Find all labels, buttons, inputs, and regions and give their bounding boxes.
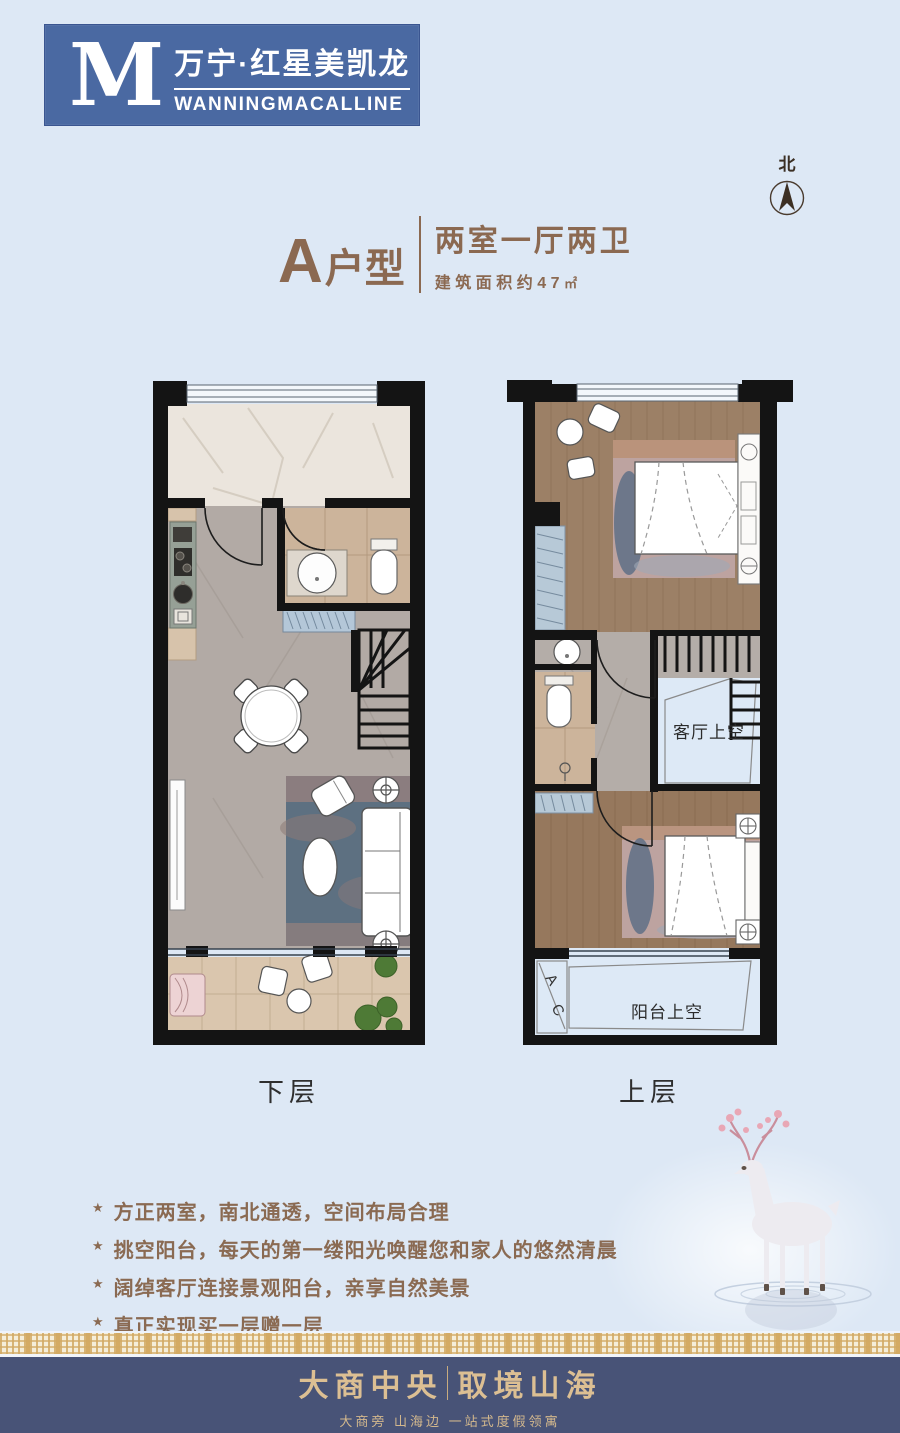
footer-banner: 大商中央 取境山海 大商旁 山海边 一站式度假领寓 xyxy=(0,1357,900,1433)
lower-floor-label: 下层 xyxy=(153,1072,425,1109)
brand-logo: M 万宁·红星美凯龙 WANNINGMACALLINE xyxy=(44,24,420,126)
north-arrow-icon xyxy=(768,178,806,216)
compass: 北 xyxy=(762,150,812,216)
unit-suffix: 户型 xyxy=(325,247,405,291)
living-void-label: 客厅上空 xyxy=(658,718,760,743)
floorplan-upper-drawing: A C xyxy=(507,378,793,1045)
balcony-void-label: 阳台上空 xyxy=(567,998,767,1023)
star-icon: ★ xyxy=(92,1276,104,1292)
star-icon: ★ xyxy=(92,1238,104,1254)
feature-text: 方正两室，南北通透，空间布局合理 xyxy=(114,1196,450,1225)
area-unit: ㎡ xyxy=(564,276,577,291)
logo-divider xyxy=(174,88,410,90)
footer-brand-divider xyxy=(447,1366,448,1400)
floorplan-poster: M 万宁·红星美凯龙 WANNINGMACALLINE 北 A 户型 两室一厅两… xyxy=(0,0,900,1433)
footer-tagline: 大商旁 山海边 一站式度假领寓 xyxy=(339,1411,560,1430)
feature-item: ★ 阔绰客厅连接景观阳台，亲享自然美景 xyxy=(92,1272,618,1301)
logo-monogram: M xyxy=(69,33,164,119)
deer-illustration xyxy=(688,1088,893,1343)
unit-title: A 户型 两室一厅两卫 建筑面积约47㎡ xyxy=(278,214,633,293)
layout-summary: 两室一厅两卫 xyxy=(435,216,633,260)
area-text: 建筑面积约47㎡ xyxy=(435,269,633,293)
star-icon: ★ xyxy=(92,1314,104,1330)
footer-brand-right: 取境山海 xyxy=(458,1361,602,1405)
footer-brand: 大商中央 取境山海 xyxy=(299,1361,602,1405)
feature-text: 阔绰客厅连接景观阳台，亲享自然美景 xyxy=(114,1272,471,1301)
logo-name-cn: 万宁·红星美凯龙 xyxy=(174,39,410,83)
features-list: ★ 方正两室，南北通透，空间布局合理 ★ 挑空阳台，每天的第一缕阳光唤醒您和家人… xyxy=(92,1196,618,1348)
compass-label: 北 xyxy=(762,150,812,175)
feature-item: ★ 挑空阳台，每天的第一缕阳光唤醒您和家人的悠然清晨 xyxy=(92,1234,618,1263)
floorplan-upper: A C xyxy=(507,378,793,1045)
footer-ornament-border xyxy=(0,1331,900,1357)
deer-icon xyxy=(688,1088,893,1338)
floorplan-lower xyxy=(153,378,425,1045)
logo-name-en: WANNINGMACALLINE xyxy=(174,94,410,116)
footer-brand-left: 大商中央 xyxy=(299,1361,443,1405)
floorplan-lower-drawing xyxy=(153,378,425,1045)
unit-letter: A xyxy=(278,233,323,291)
feature-text: 挑空阳台，每天的第一缕阳光唤醒您和家人的悠然清晨 xyxy=(114,1234,618,1263)
star-icon: ★ xyxy=(92,1200,104,1216)
feature-item: ★ 方正两室，南北通透，空间布局合理 xyxy=(92,1196,618,1225)
title-divider xyxy=(419,216,421,293)
